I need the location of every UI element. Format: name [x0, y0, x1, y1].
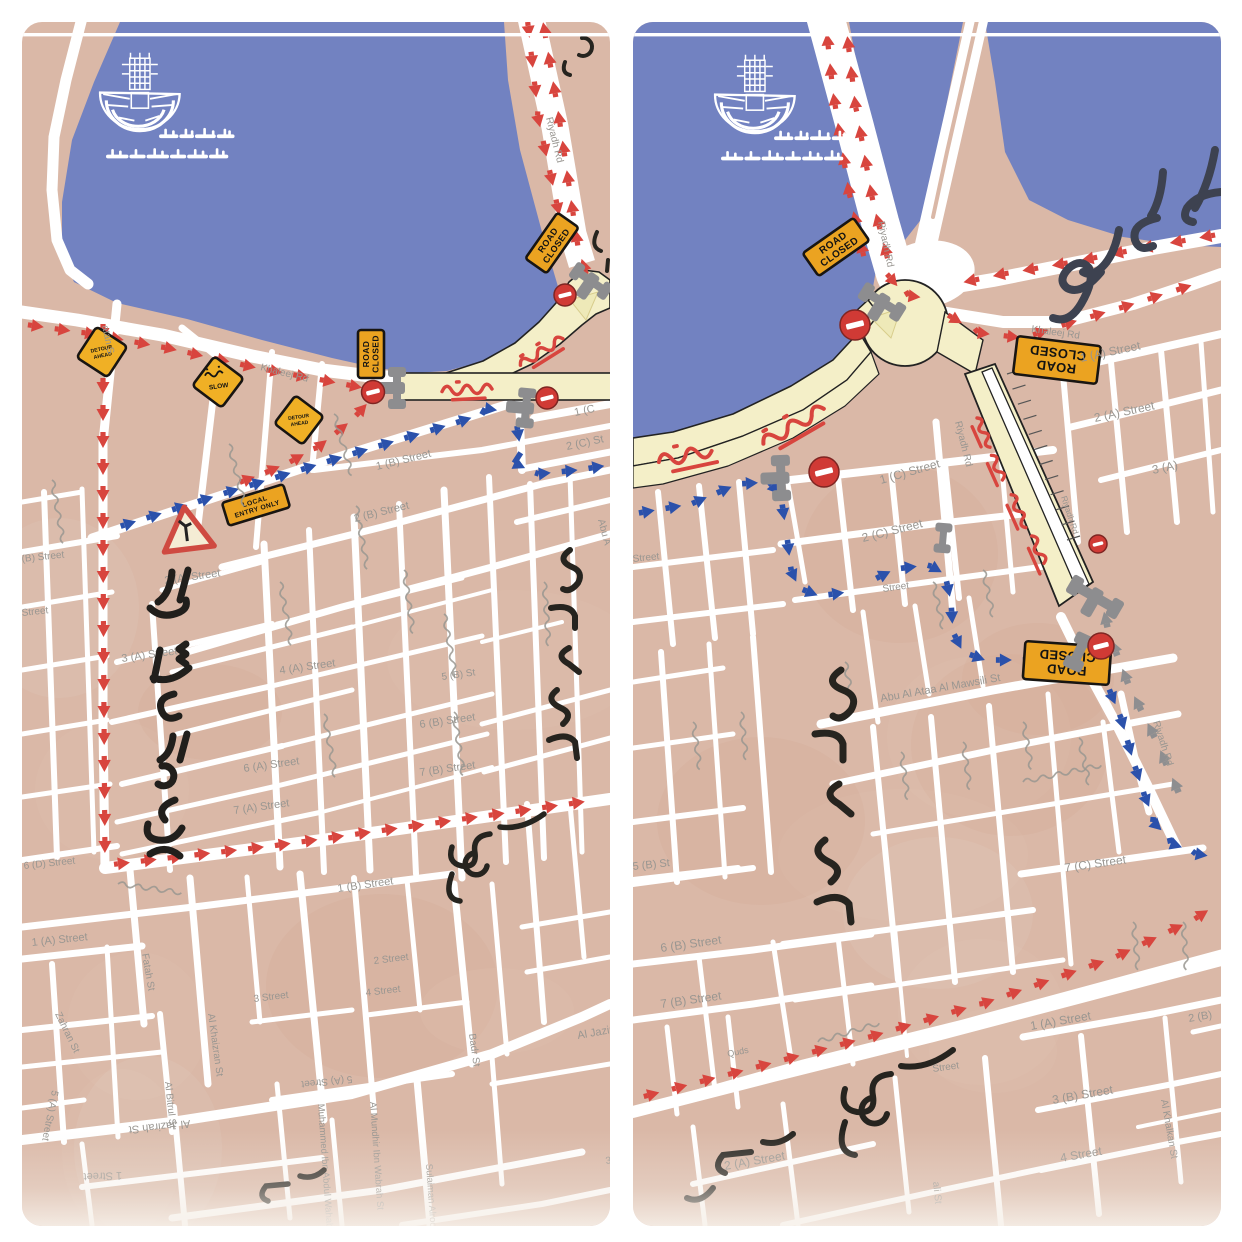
svg-text:CLOSED: CLOSED	[371, 335, 381, 373]
svg-text:ROAD: ROAD	[361, 341, 371, 368]
